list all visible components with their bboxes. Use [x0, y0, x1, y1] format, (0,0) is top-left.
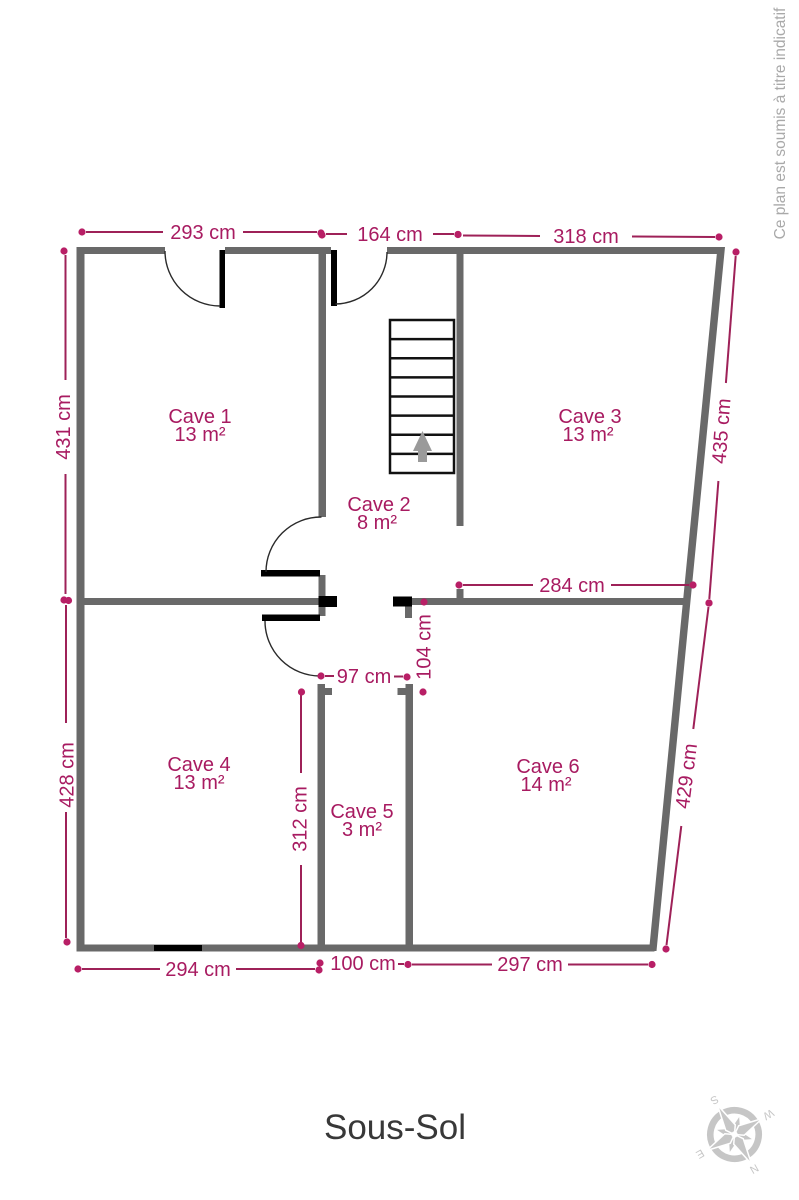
svg-text:294 cm: 294 cm — [165, 959, 231, 981]
svg-text:293 cm: 293 cm — [170, 222, 236, 244]
svg-text:297 cm: 297 cm — [497, 954, 563, 976]
svg-text:428 cm: 428 cm — [57, 742, 79, 808]
svg-text:Ce plan est soumis à titre ind: Ce plan est soumis à titre indicatif — [772, 7, 789, 239]
svg-text:97 cm: 97 cm — [337, 666, 391, 688]
svg-text:3 m²: 3 m² — [342, 819, 382, 841]
svg-text:14 m²: 14 m² — [520, 774, 571, 796]
svg-text:104 cm: 104 cm — [414, 614, 436, 680]
svg-text:164 cm: 164 cm — [357, 224, 423, 246]
svg-text:Sous-Sol: Sous-Sol — [324, 1108, 466, 1147]
svg-text:13 m²: 13 m² — [174, 424, 225, 446]
svg-text:284 cm: 284 cm — [539, 575, 605, 597]
svg-text:318 cm: 318 cm — [553, 226, 619, 248]
svg-text:13 m²: 13 m² — [173, 772, 224, 794]
svg-text:100 cm: 100 cm — [330, 953, 396, 975]
svg-text:13 m²: 13 m² — [562, 424, 613, 446]
svg-text:431 cm: 431 cm — [53, 394, 75, 460]
svg-text:8 m²: 8 m² — [357, 512, 397, 534]
svg-text:312 cm: 312 cm — [290, 786, 312, 852]
